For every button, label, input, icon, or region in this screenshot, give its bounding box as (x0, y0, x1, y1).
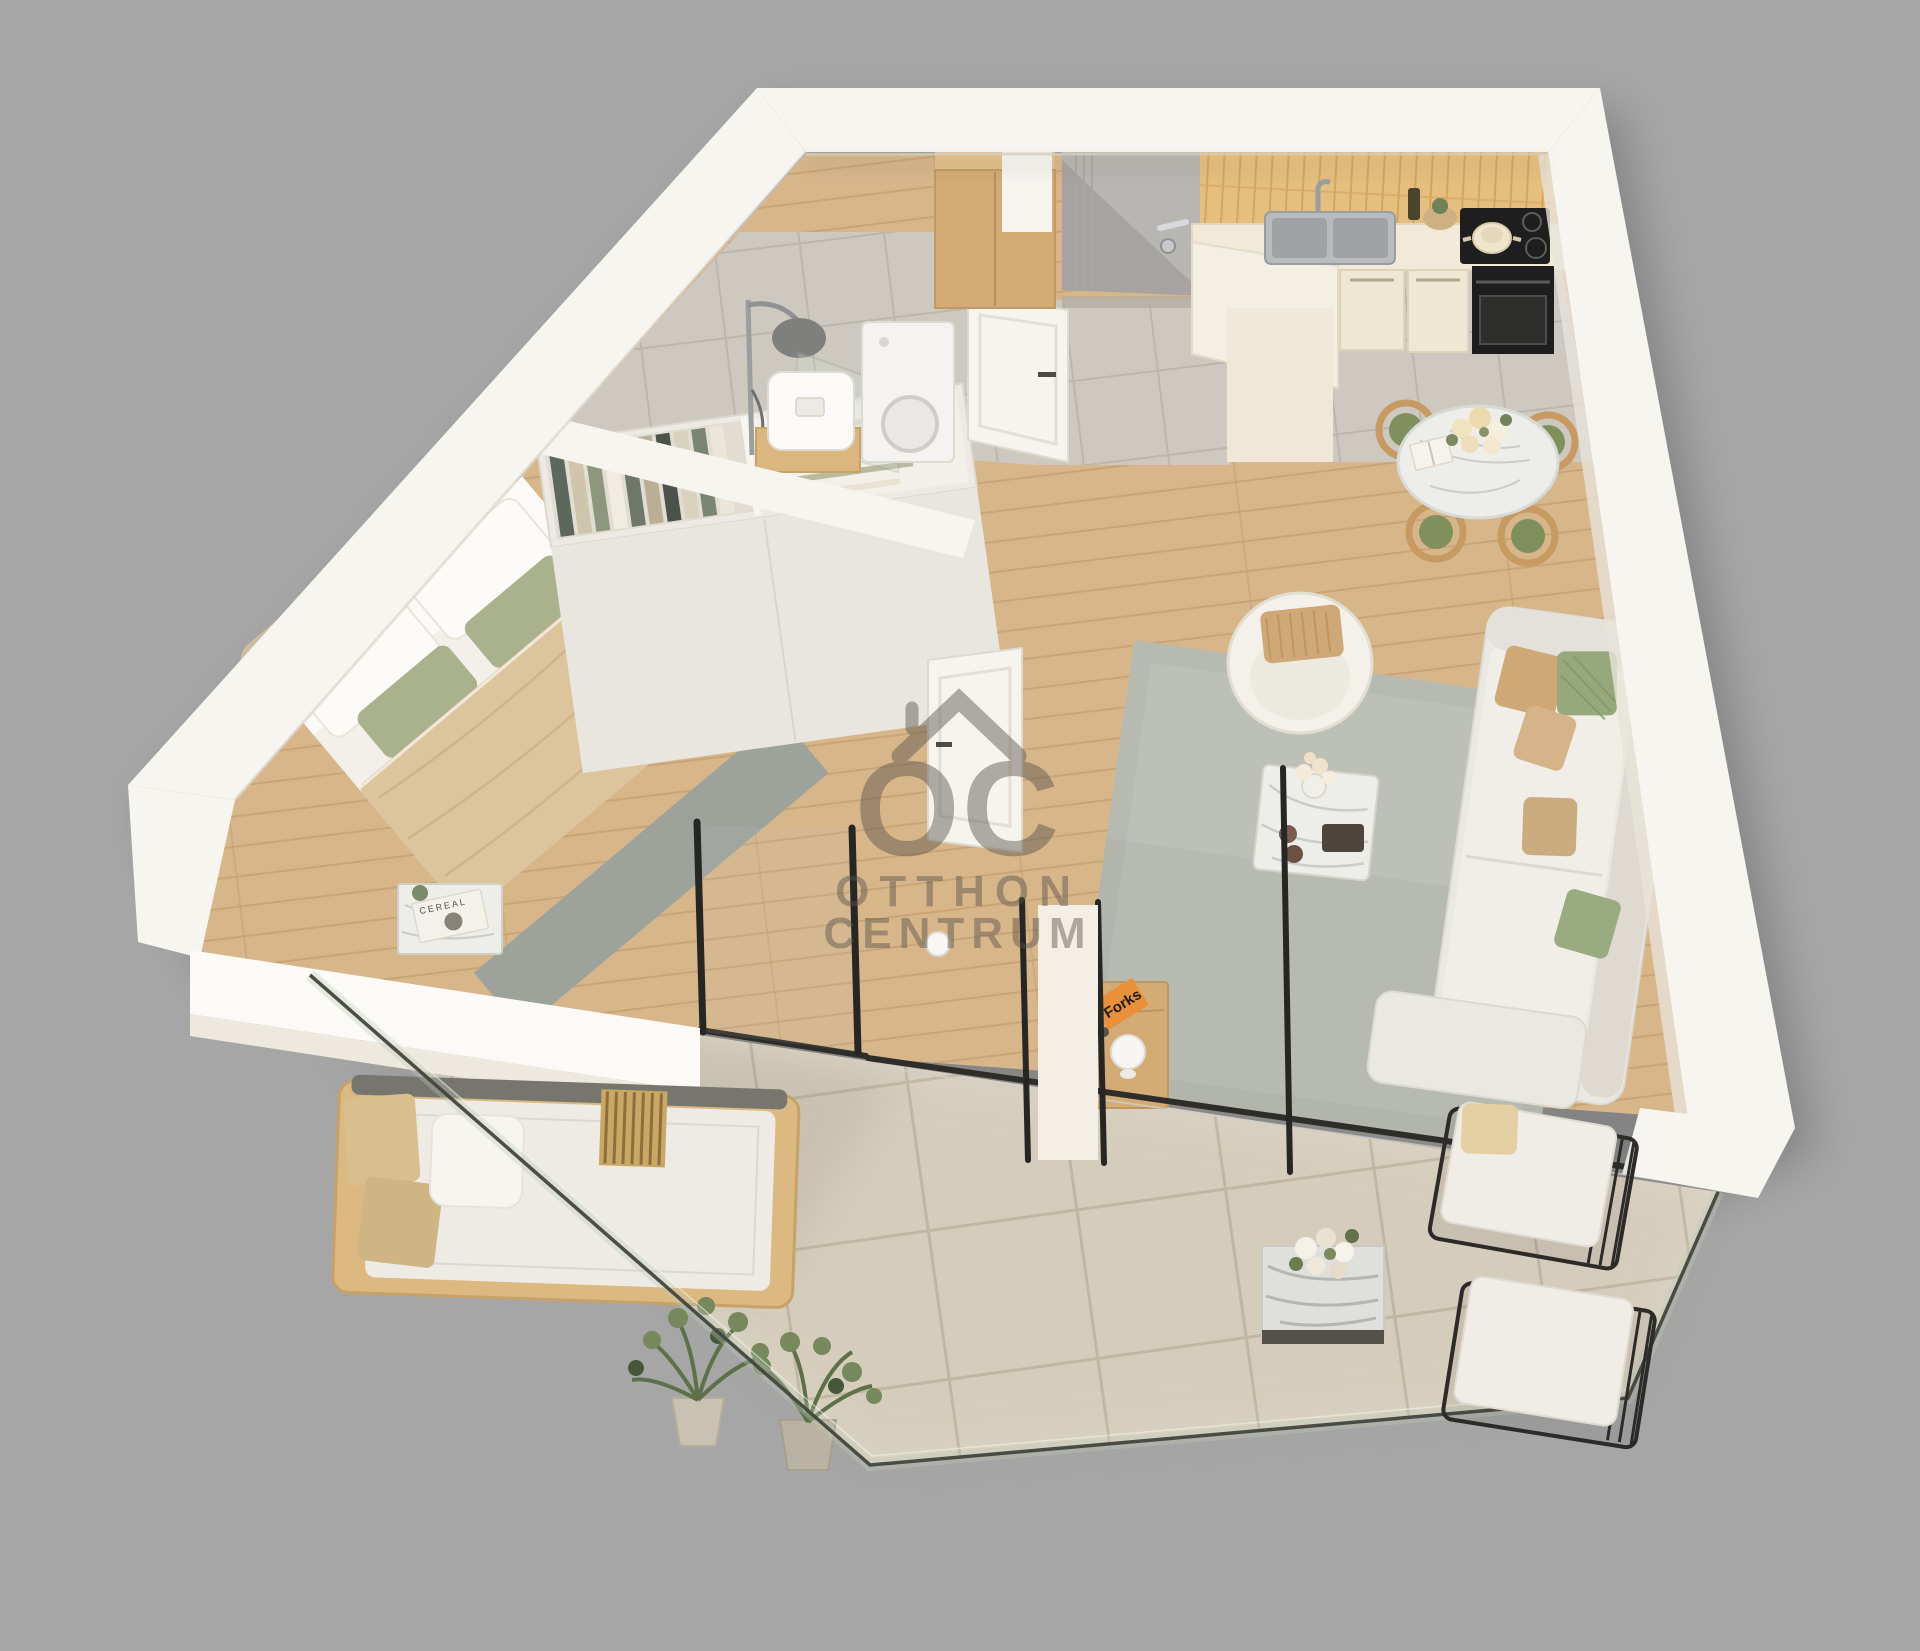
armchair (1228, 593, 1372, 733)
top-wall (757, 88, 1600, 152)
washing-machine (862, 322, 954, 462)
balcony-coffee-table (1262, 1228, 1384, 1344)
cabinet-door (1340, 270, 1404, 350)
wall-inner-shadow (806, 154, 1548, 176)
chair-cushion (1453, 1275, 1635, 1427)
green-pillow (1557, 651, 1617, 715)
mushroom-lamp (1111, 1035, 1145, 1069)
tan-pillow (1461, 1103, 1519, 1155)
tan-pillow (1522, 797, 1578, 857)
dining-table (1398, 406, 1558, 518)
bowl (1285, 845, 1303, 863)
washer-door (883, 397, 937, 451)
tan-pillow (343, 1093, 421, 1186)
watermark: OC OTTHON CENTRUM (824, 700, 1093, 958)
threshold (1062, 296, 1206, 308)
small-vase (412, 885, 428, 901)
floorplan-page: CEREAL (0, 0, 1920, 1651)
hall-living-pillar (1227, 308, 1333, 462)
cooktop (1460, 208, 1550, 264)
rattan-panel (599, 1089, 668, 1167)
door-handle (1038, 372, 1056, 377)
lounge-chair (1442, 1274, 1657, 1449)
oil-bottle (1408, 188, 1420, 220)
watermark-line2: CENTRUM (824, 909, 1093, 958)
apartment-3d-floorplan: CEREAL (0, 0, 1920, 1651)
plant-pot (672, 1398, 724, 1446)
cabinet-door (1408, 270, 1468, 352)
watermark-logo-letters: OC (855, 733, 1062, 884)
nightstand-foot: CEREAL (398, 884, 502, 954)
dark-tray (1322, 824, 1364, 852)
bathroom-door (968, 295, 1068, 462)
